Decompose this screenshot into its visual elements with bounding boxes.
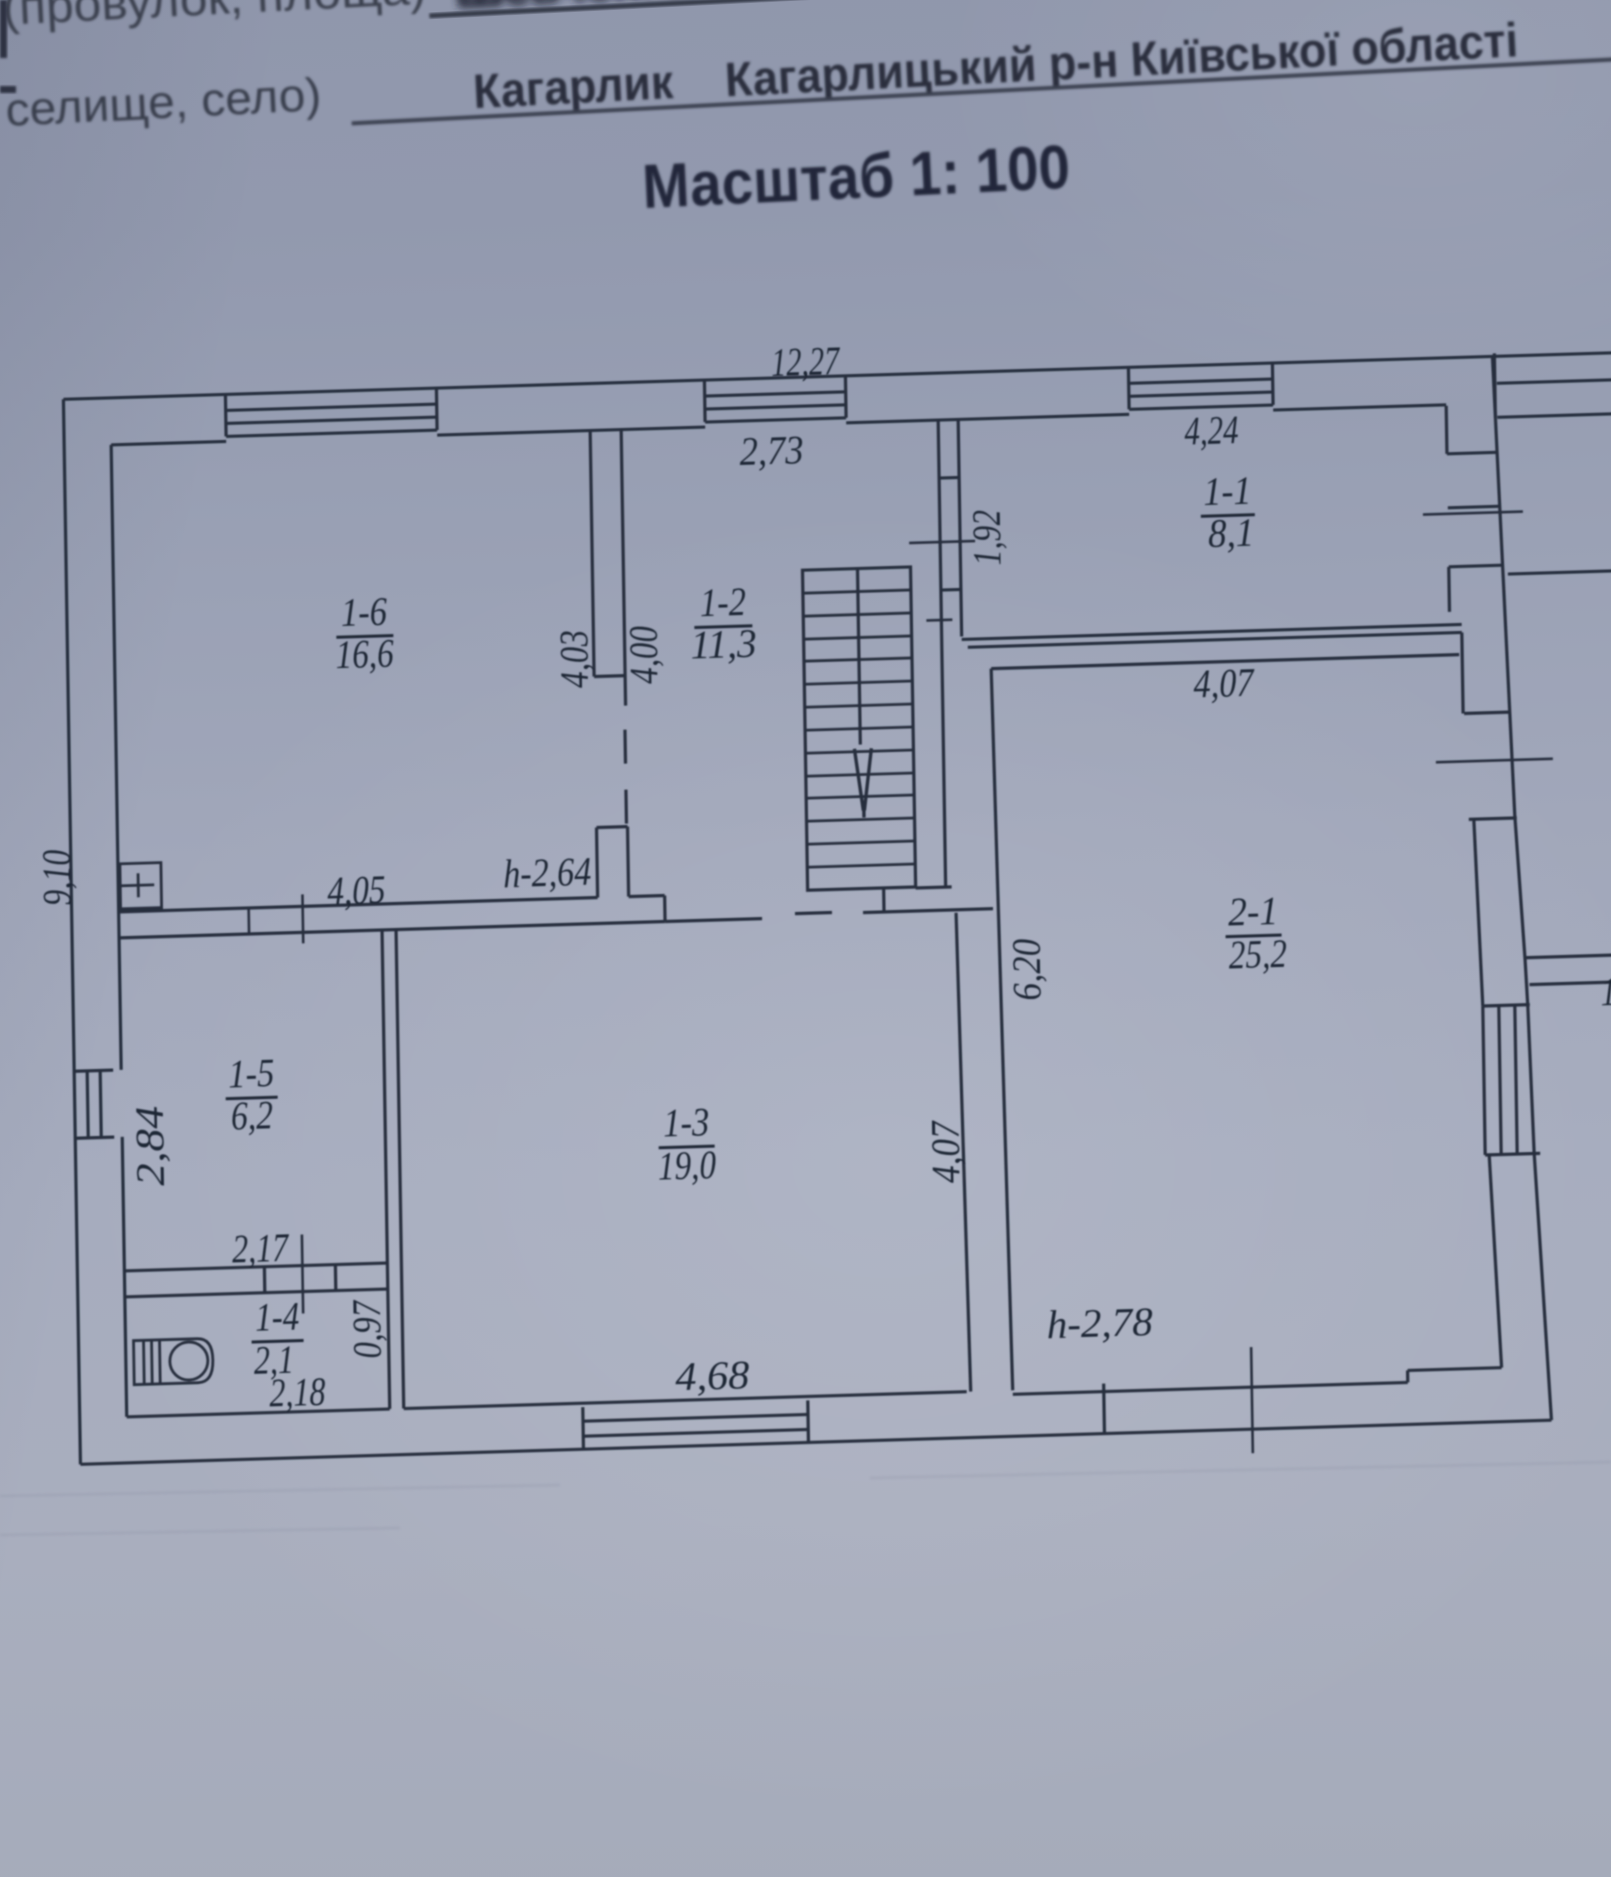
svg-text:2,84: 2,84 [127, 1105, 173, 1186]
svg-text:2-1: 2-1 [1228, 888, 1279, 934]
svg-text:12,27: 12,27 [771, 338, 841, 385]
svg-text:4,05: 4,05 [327, 867, 386, 914]
svg-text:1-3: 1-3 [663, 1099, 710, 1145]
svg-text:19,0: 19,0 [658, 1142, 717, 1189]
svg-text:4,07: 4,07 [1193, 660, 1255, 707]
svg-text:4,68: 4,68 [675, 1352, 750, 1399]
svg-text:9,10: 9,10 [34, 849, 80, 906]
svg-text:1-2: 1-2 [700, 579, 747, 625]
svg-text:16,6: 16,6 [335, 631, 394, 678]
svg-text:25,2: 25,2 [1229, 931, 1288, 978]
svg-text:2,18: 2,18 [269, 1369, 326, 1416]
svg-text:4,00: 4,00 [620, 625, 666, 684]
svg-text:h-2,64: h-2,64 [503, 849, 592, 897]
svg-text:4,03: 4,03 [551, 629, 597, 688]
svg-text:4,24: 4,24 [1184, 407, 1239, 454]
svg-text:h-2,78: h-2,78 [1046, 1299, 1153, 1347]
svg-text:6,2: 6,2 [231, 1092, 274, 1138]
svg-text:1-4: 1-4 [255, 1294, 300, 1340]
svg-text:1-5: 1-5 [228, 1050, 275, 1096]
svg-text:6,20: 6,20 [1004, 938, 1050, 1001]
svg-text:1-6: 1-6 [341, 589, 388, 635]
svg-text:2,17: 2,17 [232, 1225, 290, 1272]
svg-text:4,07: 4,07 [922, 1119, 968, 1184]
svg-text:11,3: 11,3 [690, 621, 757, 668]
svg-text:1,92: 1,92 [964, 509, 1010, 566]
svg-text:селище, село): селище, село) [4, 68, 322, 136]
svg-text:(провулок, площа): (провулок, площа) [1, 0, 427, 36]
svg-text:8,1: 8,1 [1208, 510, 1255, 556]
svg-text:0,97: 0,97 [344, 1298, 390, 1359]
svg-text:1: 1 [1600, 969, 1611, 1014]
svg-text:2,73: 2,73 [739, 427, 804, 474]
svg-text:1-1: 1-1 [1203, 468, 1252, 514]
svg-text:Кагарлицький р-н Київської обл: Кагарлицький р-н Київської області [724, 14, 1520, 107]
svg-text:Масштаб 1: 100: Масштаб 1: 100 [641, 133, 1072, 222]
